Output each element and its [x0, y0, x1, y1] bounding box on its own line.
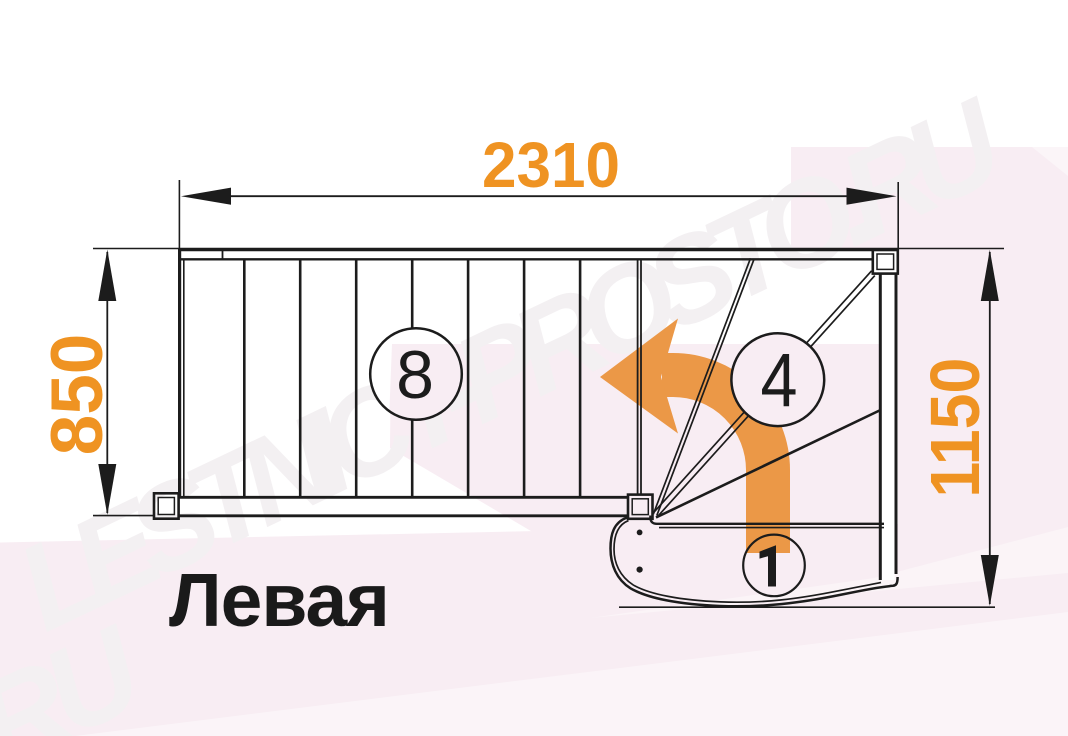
svg-text:8: 8 [396, 337, 434, 413]
svg-text:1150: 1150 [916, 358, 994, 498]
svg-text:4: 4 [761, 339, 798, 424]
svg-text:Левая: Левая [169, 558, 389, 642]
svg-text:850: 850 [37, 334, 118, 456]
svg-text:2310: 2310 [482, 129, 620, 201]
